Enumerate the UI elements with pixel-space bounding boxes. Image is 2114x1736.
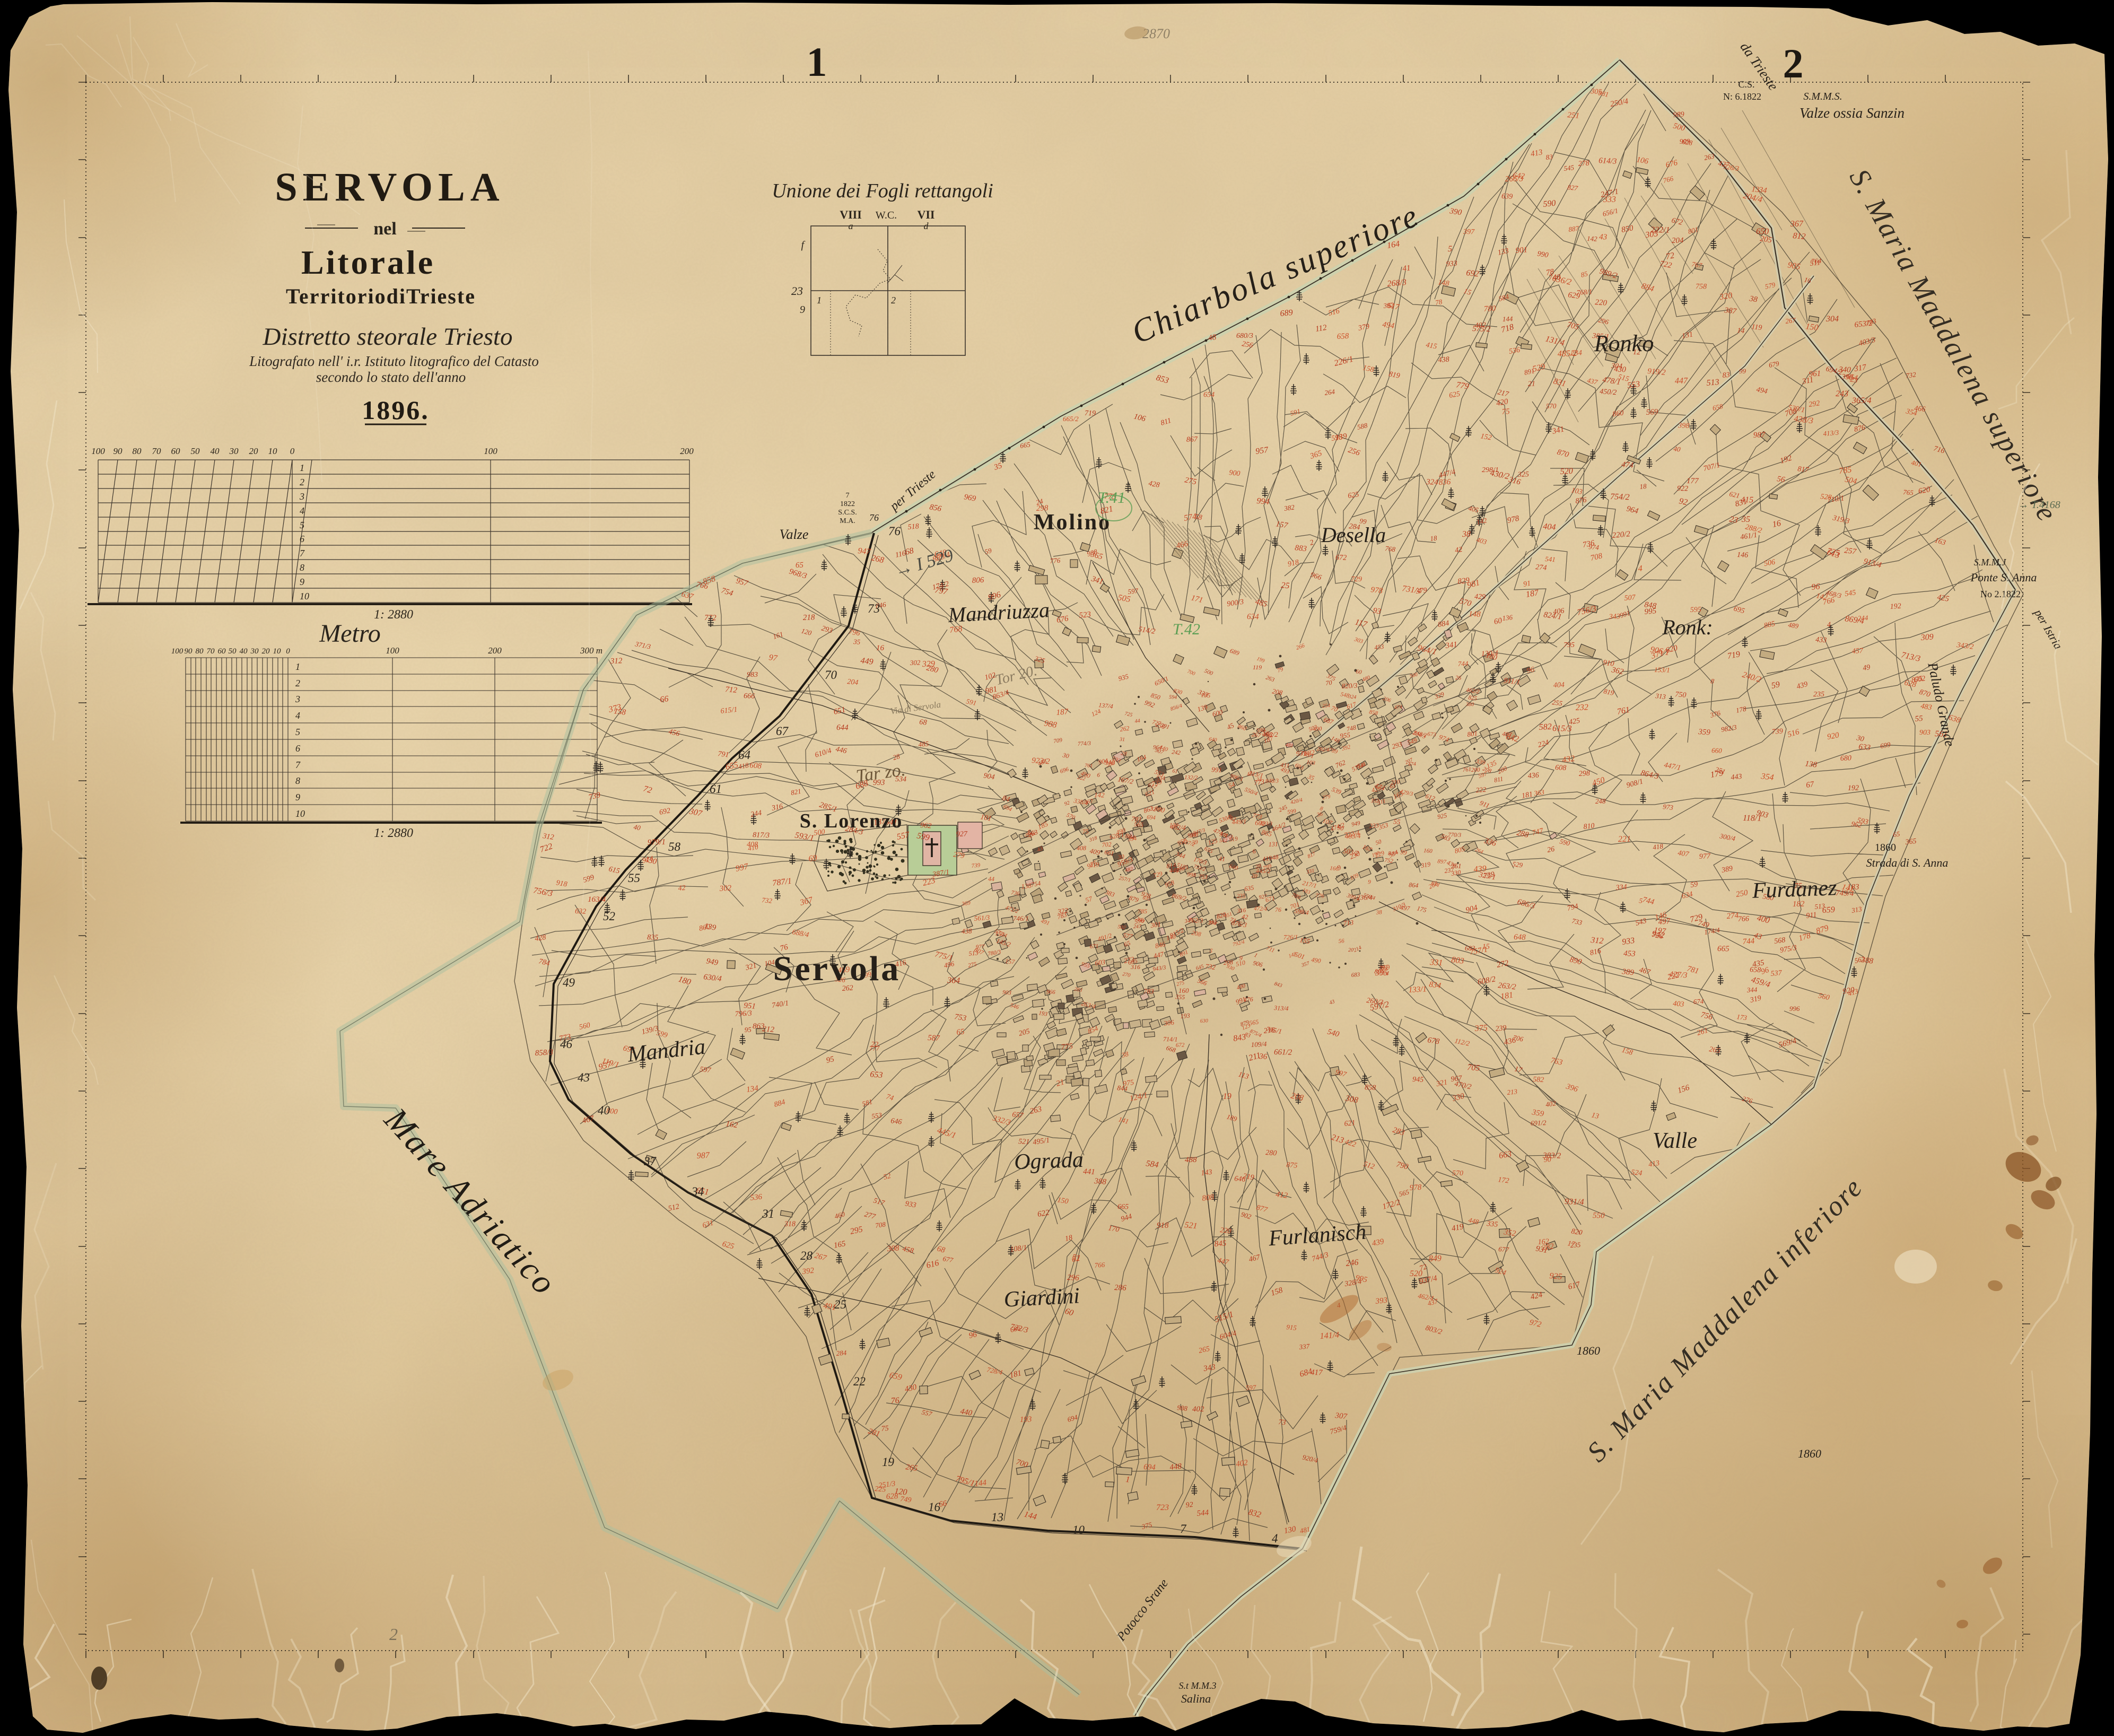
svg-text:31: 31 (762, 1207, 774, 1220)
svg-text:450/2: 450/2 (1600, 388, 1617, 397)
svg-text:776: 776 (1050, 556, 1061, 565)
svg-text:19: 19 (882, 1455, 895, 1469)
svg-text:35: 35 (853, 638, 861, 646)
svg-text:22: 22 (853, 1375, 866, 1388)
svg-text:671: 671 (1089, 943, 1098, 950)
svg-text:911: 911 (1806, 911, 1818, 920)
svg-text:131: 131 (1268, 840, 1278, 848)
svg-text:132/2: 132/2 (1184, 774, 1198, 781)
svg-text:654: 654 (1203, 391, 1215, 399)
svg-text:7: 7 (846, 492, 850, 500)
svg-text:Ograda: Ograda (1014, 1148, 1084, 1175)
svg-text:746/1: 746/1 (1013, 914, 1029, 922)
svg-text:849: 849 (1429, 1254, 1442, 1263)
svg-text:768/1: 768/1 (1576, 287, 1593, 296)
svg-text:91: 91 (1523, 580, 1531, 589)
svg-text:648: 648 (1514, 933, 1526, 942)
svg-text:1: 1 (300, 463, 304, 473)
svg-text:292/4: 292/4 (1317, 746, 1330, 753)
svg-text:7: 7 (295, 760, 301, 770)
svg-text:632: 632 (575, 908, 587, 916)
svg-text:523: 523 (1079, 610, 1091, 620)
svg-text:279: 279 (953, 851, 965, 860)
svg-text:76: 76 (888, 525, 901, 538)
svg-text:30: 30 (250, 647, 259, 656)
svg-text:43: 43 (578, 1071, 590, 1084)
svg-text:726/1: 726/1 (1283, 934, 1298, 941)
svg-text:48: 48 (1208, 333, 1217, 343)
svg-text:274: 274 (1535, 563, 1547, 572)
svg-text:529: 529 (1512, 860, 1524, 869)
svg-text:2: 2 (389, 1625, 398, 1644)
svg-text:331: 331 (1429, 958, 1443, 967)
svg-text:407: 407 (1677, 849, 1690, 859)
svg-text:666: 666 (744, 692, 755, 701)
svg-text:457: 457 (1851, 647, 1864, 656)
svg-text:406: 406 (1553, 607, 1565, 616)
svg-text:768: 768 (1385, 544, 1396, 553)
svg-text:882: 882 (1304, 748, 1315, 757)
svg-text:363: 363 (1533, 788, 1545, 797)
svg-text:9: 9 (800, 304, 805, 316)
svg-text:438: 438 (1438, 356, 1449, 364)
svg-text:49: 49 (1862, 664, 1871, 673)
svg-text:143: 143 (1201, 1168, 1212, 1177)
svg-text:513: 513 (968, 949, 979, 957)
svg-text:Ponte S. Anna: Ponte S. Anna (1970, 571, 2037, 584)
svg-text:428: 428 (534, 934, 546, 943)
svg-text:38: 38 (1375, 909, 1382, 916)
svg-text:49: 49 (563, 976, 575, 989)
svg-text:817/3: 817/3 (753, 831, 770, 840)
svg-text:883: 883 (1295, 544, 1307, 553)
svg-text:136: 136 (1502, 613, 1513, 622)
svg-text:262: 262 (1120, 725, 1130, 733)
svg-text:2: 2 (1783, 40, 1804, 86)
svg-text:602: 602 (1255, 818, 1266, 827)
svg-text:25: 25 (834, 1298, 846, 1311)
svg-text:200: 200 (488, 645, 502, 656)
svg-text:298: 298 (1578, 770, 1590, 778)
svg-text:380: 380 (1465, 702, 1474, 708)
svg-text:151: 151 (995, 929, 1006, 938)
svg-text:193: 193 (1180, 1011, 1190, 1020)
svg-text:608: 608 (1555, 764, 1567, 772)
svg-text:810: 810 (1583, 822, 1595, 831)
svg-text:770/3: 770/3 (1448, 832, 1462, 839)
svg-text:60: 60 (218, 647, 226, 656)
svg-text:453: 453 (1374, 643, 1384, 651)
svg-text:7: 7 (300, 548, 305, 559)
svg-text:46: 46 (560, 1037, 573, 1051)
svg-text:989: 989 (1673, 111, 1684, 119)
svg-text:449/1: 449/1 (1231, 818, 1246, 826)
svg-text:284: 284 (836, 1349, 847, 1357)
svg-text:774/3: 774/3 (1078, 740, 1091, 747)
svg-text:528: 528 (1820, 493, 1832, 502)
svg-text:774: 774 (1208, 920, 1217, 927)
svg-text:744: 744 (1742, 937, 1755, 946)
svg-text:635: 635 (1244, 884, 1254, 893)
svg-text:257: 257 (1844, 546, 1858, 556)
svg-text:160: 160 (1423, 848, 1433, 854)
svg-text:31: 31 (1119, 737, 1125, 743)
svg-text:Strada di S. Anna: Strada di S. Anna (1866, 856, 1949, 869)
svg-text:603: 603 (1095, 958, 1106, 967)
svg-text:75: 75 (881, 1425, 889, 1433)
svg-text:453: 453 (1623, 949, 1636, 958)
svg-text:213: 213 (1507, 1087, 1518, 1096)
svg-text:90: 90 (113, 446, 123, 456)
svg-text:312: 312 (1590, 936, 1604, 946)
svg-text:713: 713 (1343, 918, 1354, 927)
svg-text:502: 502 (1117, 924, 1126, 931)
svg-text:835: 835 (647, 934, 659, 942)
svg-text:Metro: Metro (319, 620, 381, 648)
svg-text:845: 845 (1214, 1239, 1227, 1249)
svg-text:536: 536 (750, 1193, 763, 1202)
svg-text:672: 672 (1335, 554, 1347, 562)
svg-text:776: 776 (1315, 893, 1324, 900)
svg-text:177: 177 (1687, 477, 1699, 485)
svg-text:20: 20 (1348, 947, 1353, 953)
svg-text:750: 750 (1675, 691, 1687, 700)
svg-text:983: 983 (747, 671, 758, 679)
svg-text:1: 1 (807, 39, 827, 85)
svg-text:761: 761 (1085, 763, 1093, 769)
svg-text:0: 0 (290, 446, 295, 456)
svg-text:978: 978 (1409, 1183, 1422, 1192)
svg-text:21: 21 (1528, 380, 1536, 388)
svg-text:490: 490 (1311, 956, 1322, 965)
svg-text:335: 335 (1486, 1220, 1498, 1229)
svg-text:660: 660 (1711, 746, 1723, 755)
svg-text:75: 75 (1082, 827, 1089, 835)
svg-text:513: 513 (1814, 902, 1825, 911)
svg-text:415: 415 (1741, 495, 1753, 504)
svg-text:375: 375 (1474, 1023, 1488, 1033)
svg-text:561/3: 561/3 (974, 913, 990, 922)
svg-text:30: 30 (1117, 853, 1124, 861)
svg-text:379: 379 (1415, 587, 1427, 596)
svg-text:119: 119 (1253, 664, 1262, 671)
svg-text:204: 204 (847, 678, 859, 687)
svg-text:402: 402 (1235, 1459, 1248, 1469)
svg-text:931/4: 931/4 (1565, 1197, 1584, 1207)
svg-text:739: 739 (1771, 728, 1783, 736)
svg-text:251: 251 (1567, 111, 1580, 120)
svg-text:762/3: 762/3 (1189, 917, 1203, 924)
svg-text:133/1: 133/1 (1408, 985, 1427, 995)
svg-text:40: 40 (211, 446, 220, 456)
svg-text:80: 80 (196, 647, 204, 656)
svg-text:146: 146 (1737, 551, 1749, 560)
svg-text:5: 5 (1448, 245, 1452, 254)
svg-text:212: 212 (762, 1025, 775, 1034)
svg-text:138: 138 (1021, 882, 1033, 891)
svg-text:689: 689 (1280, 308, 1293, 318)
svg-text:806: 806 (972, 576, 984, 585)
svg-text:42: 42 (1454, 546, 1463, 555)
svg-text:801: 801 (1467, 729, 1478, 738)
svg-text:3: 3 (295, 694, 300, 704)
svg-text:365/4: 365/4 (1851, 396, 1871, 405)
svg-text:Litografato nell' i.r. Istitut: Litografato nell' i.r. Istituto litograf… (249, 353, 539, 369)
svg-text:193: 193 (1020, 1415, 1032, 1424)
svg-text:404: 404 (1543, 522, 1556, 532)
svg-text:142: 142 (1587, 234, 1598, 243)
svg-text:903: 903 (1919, 729, 1930, 737)
svg-text:1: 1 (1125, 1475, 1130, 1485)
svg-text:48: 48 (1271, 853, 1279, 861)
svg-text:Valle: Valle (1653, 1129, 1697, 1153)
svg-text:927: 927 (1259, 894, 1268, 901)
svg-text:796/3: 796/3 (735, 1009, 752, 1018)
svg-text:25: 25 (1281, 581, 1290, 590)
svg-text:947: 947 (858, 546, 872, 557)
svg-text:910: 910 (1602, 659, 1614, 668)
svg-text:Servola: Servola (773, 949, 901, 988)
svg-text:W.C.: W.C. (876, 210, 897, 221)
svg-text:436: 436 (1527, 772, 1539, 780)
svg-text:19: 19 (1223, 1092, 1232, 1101)
svg-text:83: 83 (1545, 153, 1553, 161)
svg-text:0: 0 (286, 647, 290, 656)
svg-text:S.M.M.S.: S.M.M.S. (1803, 91, 1842, 102)
svg-text:38: 38 (1462, 530, 1471, 539)
svg-text:9: 9 (300, 577, 304, 587)
svg-text:991: 991 (1211, 765, 1222, 774)
svg-text:302: 302 (719, 884, 732, 893)
svg-text:Valze ossia Sanzin: Valze ossia Sanzin (1799, 105, 1905, 121)
svg-text:497: 497 (1658, 917, 1671, 927)
svg-text:204: 204 (1672, 237, 1684, 245)
svg-text:Giardini: Giardini (1003, 1284, 1080, 1312)
svg-text:476: 476 (1243, 996, 1253, 1004)
svg-text:474: 474 (1394, 704, 1402, 711)
svg-text:109/4: 109/4 (1251, 1040, 1267, 1049)
svg-text:Distretto steorale Triesto: Distretto steorale Triesto (263, 323, 513, 351)
svg-text:d: d (924, 221, 929, 231)
svg-text:625: 625 (1347, 491, 1359, 500)
svg-text:462/4: 462/4 (1170, 823, 1186, 832)
svg-text:521: 521 (1184, 1220, 1198, 1231)
svg-text:544: 544 (1196, 1508, 1209, 1518)
svg-text:220: 220 (1595, 298, 1608, 308)
svg-text:978: 978 (1370, 586, 1384, 596)
svg-text:103: 103 (1306, 759, 1316, 766)
svg-text:957: 957 (1255, 446, 1269, 456)
svg-text:137/4: 137/4 (1098, 701, 1114, 710)
svg-text:16: 16 (928, 1501, 941, 1514)
svg-text:195: 195 (1201, 691, 1211, 699)
svg-text:69: 69 (808, 853, 818, 863)
svg-text:274: 274 (1726, 911, 1739, 921)
svg-text:56: 56 (1338, 938, 1345, 945)
svg-text:30: 30 (229, 446, 239, 456)
svg-text:918: 918 (1157, 1222, 1169, 1230)
svg-text:594: 594 (1169, 694, 1177, 701)
svg-text:979/1: 979/1 (648, 838, 666, 847)
svg-text:418: 418 (1652, 842, 1664, 851)
svg-text:23: 23 (791, 284, 803, 298)
svg-text:553: 553 (871, 1111, 883, 1120)
svg-text:876: 876 (1575, 496, 1587, 505)
svg-text:M.A.: M.A. (840, 517, 855, 525)
svg-text:608: 608 (749, 761, 762, 771)
svg-text:173: 173 (1736, 1013, 1748, 1022)
svg-text:691/2: 691/2 (1531, 1119, 1547, 1127)
svg-text:67: 67 (776, 725, 789, 738)
svg-text:4: 4 (300, 505, 304, 516)
svg-text:306: 306 (1163, 1018, 1175, 1027)
svg-text:595: 595 (1690, 606, 1702, 614)
svg-text:597: 597 (700, 1066, 712, 1075)
svg-text:402: 402 (1192, 1405, 1204, 1414)
svg-text:387: 387 (1724, 306, 1738, 316)
svg-text:65: 65 (956, 1027, 965, 1037)
svg-text:42: 42 (1242, 913, 1248, 921)
svg-text:144: 144 (974, 1479, 988, 1488)
svg-text:42: 42 (678, 884, 686, 893)
svg-text:41: 41 (1219, 855, 1225, 862)
svg-text:305: 305 (1644, 229, 1658, 240)
svg-text:64: 64 (738, 748, 750, 762)
svg-text:545: 545 (1844, 589, 1856, 598)
svg-text:665: 665 (1117, 1203, 1129, 1211)
svg-text:587: 587 (928, 1034, 941, 1043)
svg-text:739: 739 (971, 862, 981, 869)
svg-text:134: 134 (746, 1084, 759, 1094)
svg-text:988: 988 (1177, 1403, 1188, 1412)
svg-text:138: 138 (1805, 760, 1818, 770)
svg-text:141/4: 141/4 (1320, 1330, 1340, 1341)
svg-text:13: 13 (991, 1511, 1003, 1524)
svg-text:Molino: Molino (1034, 510, 1111, 535)
svg-text:5: 5 (295, 727, 300, 737)
svg-text:255: 255 (1552, 698, 1563, 708)
svg-text:221: 221 (1618, 835, 1631, 844)
svg-text:392: 392 (1383, 301, 1394, 310)
svg-text:52: 52 (603, 910, 615, 923)
svg-text:412: 412 (1276, 1190, 1289, 1200)
svg-text:119: 119 (1751, 323, 1762, 332)
svg-text:268/3: 268/3 (1387, 278, 1407, 289)
svg-text:340: 340 (1838, 365, 1851, 374)
svg-text:130/4: 130/4 (1481, 649, 1498, 658)
svg-text:239: 239 (1495, 1024, 1507, 1033)
svg-text:296: 296 (1067, 1273, 1080, 1283)
svg-text:485/2: 485/2 (1558, 349, 1577, 359)
svg-text:192: 192 (1848, 784, 1859, 792)
svg-text:99: 99 (1739, 367, 1746, 375)
svg-text:No 2.1822: No 2.1822 (1980, 589, 2021, 599)
svg-text:1860: 1860 (1577, 1344, 1600, 1357)
svg-text:4: 4 (1827, 621, 1831, 629)
svg-text:313/4: 313/4 (1273, 1004, 1289, 1012)
svg-text:90: 90 (185, 647, 193, 656)
svg-text:18: 18 (1639, 482, 1647, 491)
svg-text:28: 28 (800, 1249, 813, 1262)
svg-text:402: 402 (1545, 1099, 1557, 1109)
svg-text:1822: 1822 (840, 500, 855, 508)
svg-text:485: 485 (918, 739, 929, 748)
svg-text:524: 524 (1631, 1168, 1643, 1177)
svg-text:394: 394 (1127, 835, 1137, 843)
svg-text:860: 860 (1612, 409, 1624, 418)
svg-text:73: 73 (1278, 1418, 1286, 1427)
svg-text:494: 494 (1382, 320, 1395, 330)
svg-text:243: 243 (1836, 389, 1848, 398)
svg-text:848: 848 (1644, 600, 1657, 610)
svg-text:570: 570 (1452, 1170, 1463, 1177)
svg-text:187: 187 (1056, 708, 1069, 717)
svg-text:359: 359 (1698, 728, 1711, 737)
svg-text:438: 438 (962, 927, 972, 935)
svg-text:702: 702 (1102, 840, 1112, 849)
svg-text:254: 254 (1322, 703, 1330, 709)
svg-text:83: 83 (1722, 371, 1730, 380)
svg-text:2: 2 (300, 477, 304, 487)
svg-text:736: 736 (1011, 889, 1021, 897)
svg-text:40: 40 (1673, 444, 1681, 453)
svg-text:900: 900 (1229, 469, 1241, 478)
svg-text:309: 309 (1920, 632, 1934, 642)
svg-text:398: 398 (1678, 422, 1690, 430)
svg-text:343: 343 (1609, 613, 1621, 621)
svg-text:20: 20 (249, 446, 259, 456)
svg-text:673: 673 (1427, 731, 1437, 738)
svg-text:511: 511 (1810, 259, 1821, 268)
svg-text:402: 402 (1474, 321, 1486, 330)
svg-text:897: 897 (1437, 858, 1447, 866)
svg-text:S. Lorenzo: S. Lorenzo (800, 810, 903, 832)
svg-text:148: 148 (1437, 278, 1449, 288)
svg-text:925: 925 (1549, 1271, 1562, 1281)
svg-text:541: 541 (1545, 555, 1556, 563)
svg-text:393: 393 (1375, 1296, 1388, 1306)
svg-text:312: 312 (541, 832, 554, 842)
svg-text:927: 927 (956, 830, 968, 839)
svg-text:286: 286 (1114, 1284, 1127, 1293)
svg-text:100: 100 (91, 446, 105, 456)
svg-text:812: 812 (1793, 231, 1806, 241)
svg-text:100: 100 (386, 645, 399, 656)
svg-text:761: 761 (1462, 766, 1471, 773)
svg-text:8: 8 (300, 562, 304, 573)
svg-text:341: 341 (1445, 640, 1458, 650)
svg-text:S.M.M.J: S.M.M.J (1974, 557, 2006, 568)
svg-text:80: 80 (133, 446, 142, 456)
svg-text:50: 50 (191, 446, 200, 456)
svg-text:553: 553 (1627, 380, 1640, 390)
svg-text:61: 61 (710, 782, 722, 796)
svg-text:82: 82 (1071, 1254, 1081, 1264)
svg-text:172: 172 (1498, 1176, 1510, 1185)
svg-text:280: 280 (1265, 1149, 1277, 1157)
svg-text:44: 44 (1134, 718, 1140, 725)
svg-text:100: 100 (484, 446, 497, 456)
svg-text:887: 887 (1568, 224, 1580, 233)
svg-text:785: 785 (1838, 465, 1852, 476)
svg-text:37: 37 (643, 1155, 657, 1168)
svg-text:650: 650 (1756, 227, 1769, 236)
svg-text:112: 112 (1315, 324, 1327, 334)
svg-text:Ronk:: Ronk: (1662, 615, 1713, 639)
svg-text:639: 639 (1501, 193, 1513, 201)
svg-text:30: 30 (1855, 734, 1865, 744)
svg-text:nel: nel (373, 219, 396, 239)
